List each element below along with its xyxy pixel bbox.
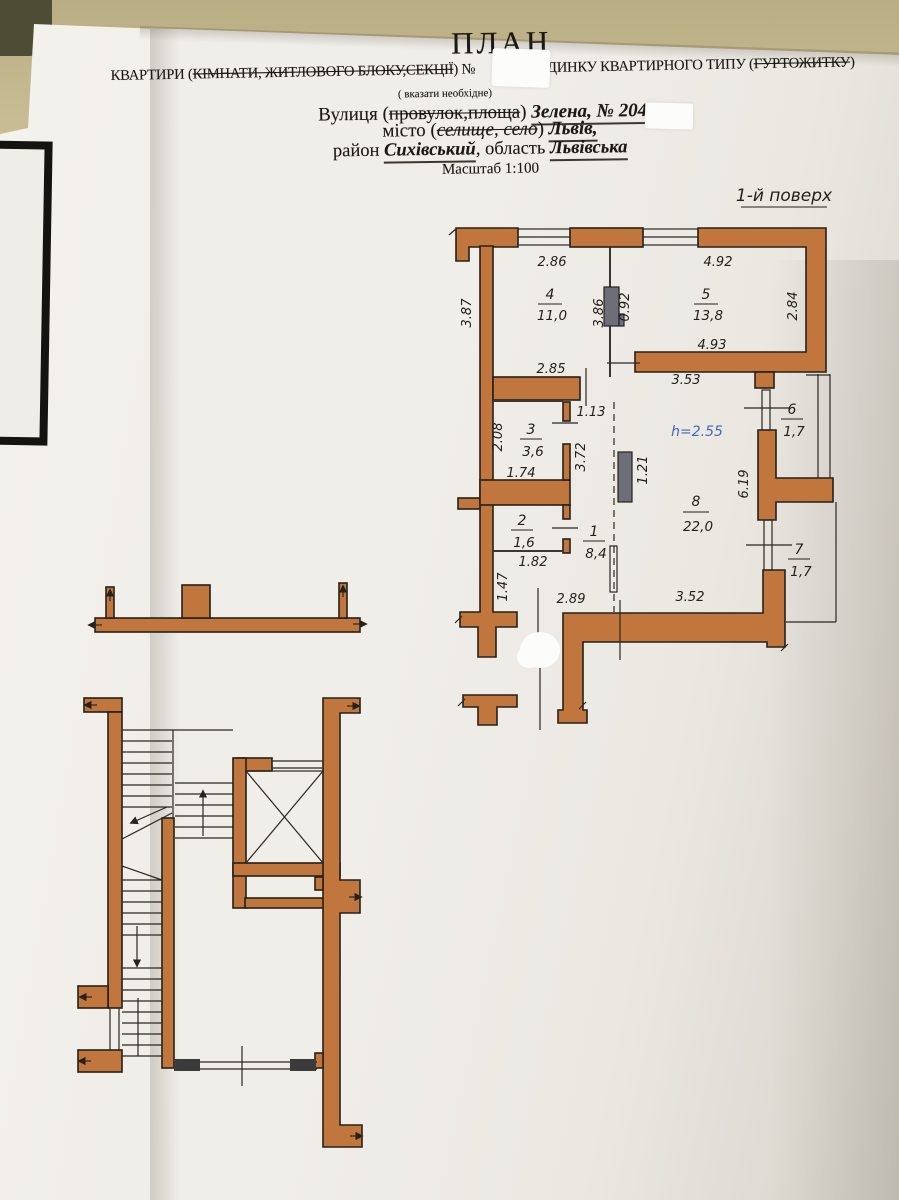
dim-left-room4: 3.87: [460, 298, 475, 328]
dim-right-room8: 6.19: [737, 470, 752, 499]
room8-number: 8: [692, 494, 701, 510]
dim-bottom-room5: 4.93: [698, 338, 727, 353]
floor-label: 1-й поверх: [736, 186, 833, 206]
dim-bottom-room2: 1.82: [519, 555, 548, 570]
dim-bottom-room3: 1.74: [507, 466, 536, 481]
room5-number: 5: [702, 287, 711, 303]
room3-number: 3: [527, 422, 536, 438]
redaction-plan-note: [517, 632, 560, 668]
window-room4: [518, 229, 570, 245]
room6-number: 6: [788, 402, 797, 418]
dim-hall-left: 3.72: [574, 443, 589, 472]
dim-door-hall: 1.13: [577, 405, 606, 420]
stair-treads: [122, 730, 233, 1056]
dim-bottom-room4: 2.85: [537, 362, 566, 377]
room5-area: 13,8: [693, 308, 723, 324]
ceiling-height-note: h=2.55: [671, 424, 723, 440]
floor-plan-drawing: 1-й поверх h=2.55 4 11,0 5 13,8 3 3,6 2 …: [0, 0, 899, 1200]
room7-area: 1,7: [790, 564, 812, 580]
staircase-plan: [78, 583, 366, 1147]
room4-area: 11,0: [537, 308, 567, 324]
room2-number: 2: [518, 513, 527, 529]
room1-number: 1: [590, 524, 599, 540]
dim-bottom-hall: 2.89: [557, 592, 586, 607]
dim-hall-vent: 1.21: [636, 456, 651, 485]
dimension-labels: 2.86 4.92 2.85 4.93 3.53 1.13 1.74 1.82 …: [460, 255, 801, 607]
dim-left-room3: 2.08: [491, 423, 506, 452]
dim-top-room4: 2.86: [538, 255, 567, 270]
vent-shaft-2: [618, 452, 632, 502]
stairwell-windows: [110, 998, 317, 1086]
room8-area: 22,0: [683, 519, 713, 535]
dim-entry-left: 1.47: [496, 572, 511, 602]
dim-right-room5: 2.84: [786, 292, 801, 321]
room1-area: 8,4: [585, 546, 606, 562]
dim-top-room5: 4.92: [704, 255, 733, 270]
dim-vent: 0.92: [618, 293, 633, 322]
room3-area: 3,6: [522, 444, 543, 460]
room2-area: 1,6: [513, 535, 534, 551]
room6-area: 1,7: [783, 424, 805, 440]
window-room5: [643, 229, 698, 245]
room4-number: 4: [546, 287, 555, 303]
dim-mid-room4: 3.86: [592, 299, 607, 328]
elevator-shaft: [246, 761, 323, 863]
room7-number: 7: [795, 542, 804, 558]
dim-bottom-room8: 3.52: [676, 590, 705, 605]
dim-top-room8: 3.53: [672, 373, 701, 388]
